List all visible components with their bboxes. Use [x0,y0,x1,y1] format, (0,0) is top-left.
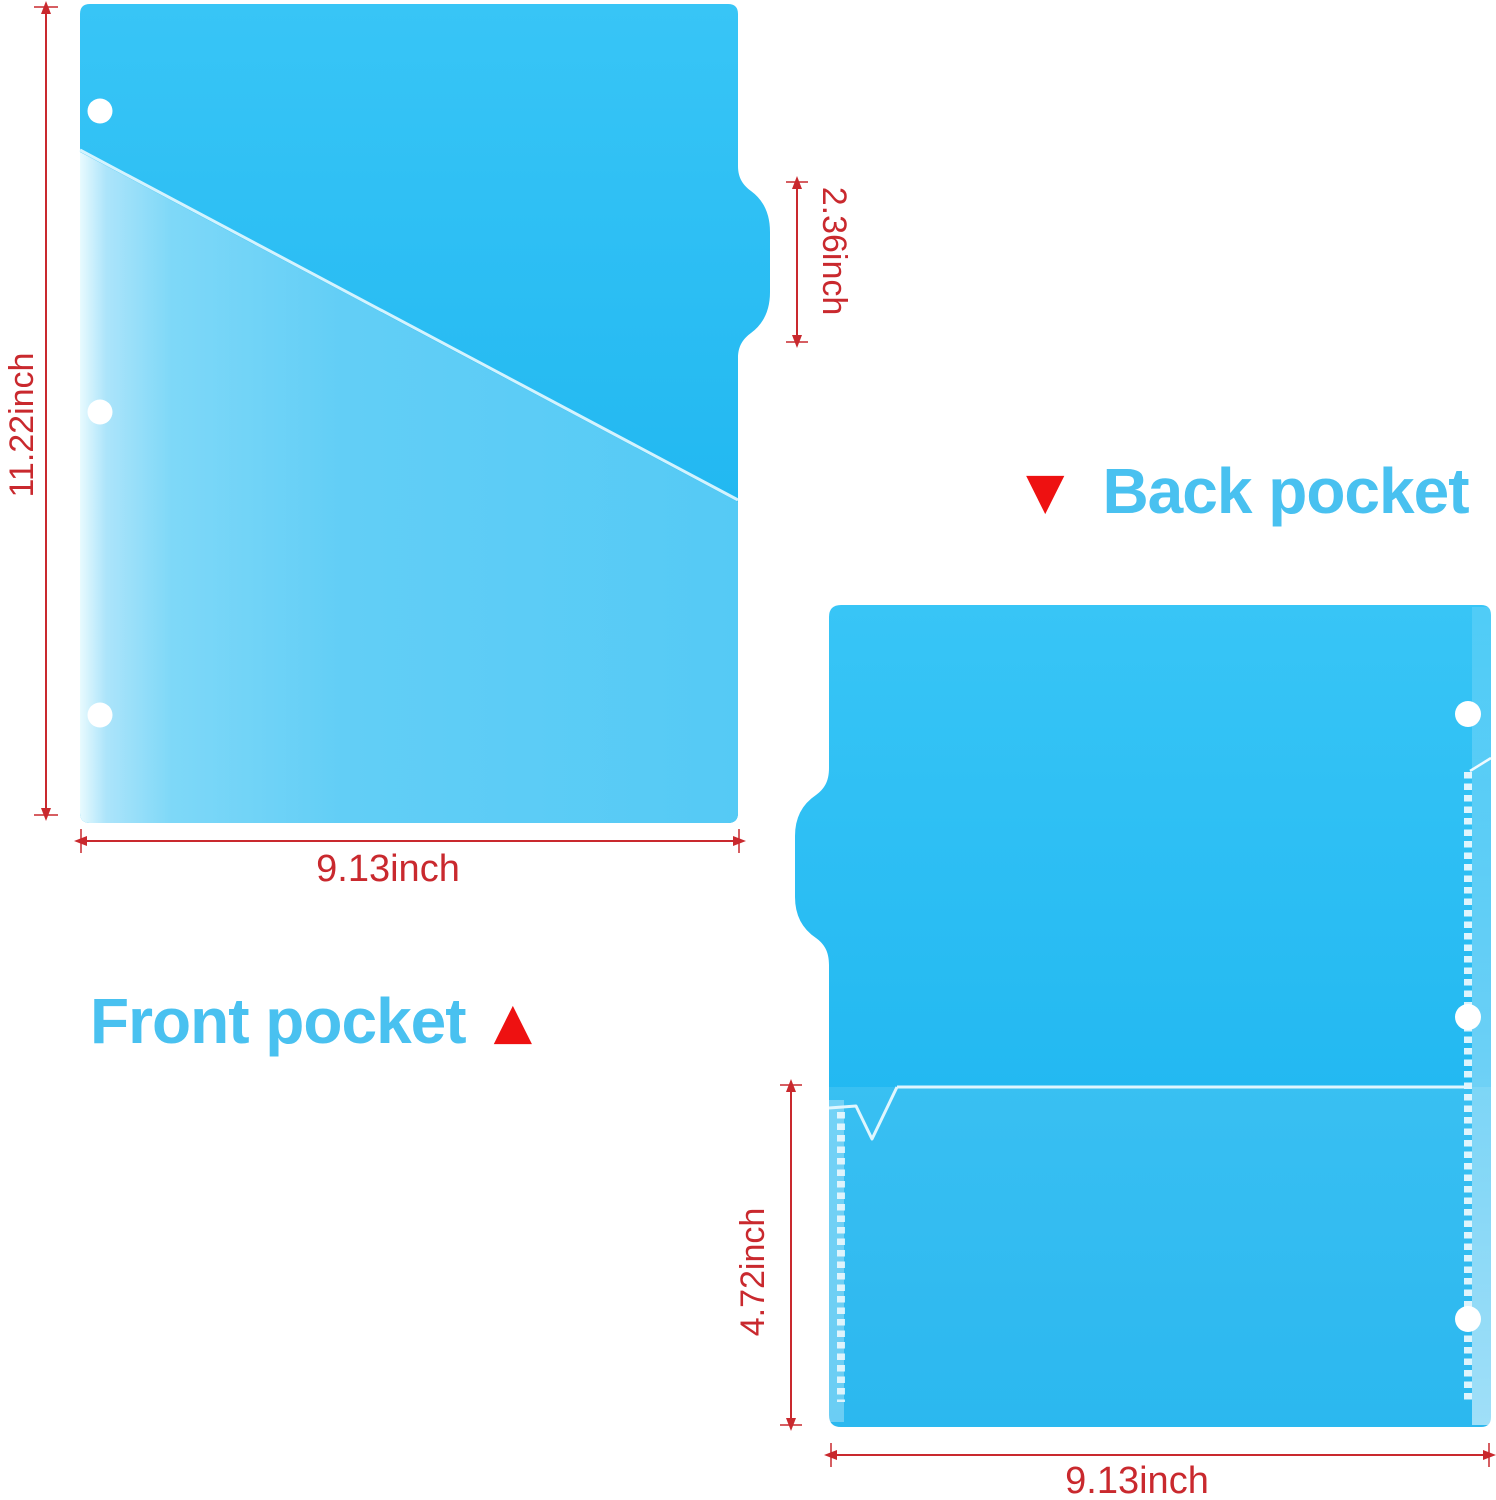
dim-line-tab-height [786,176,808,348]
front-width-label: 9.13inch [278,847,498,891]
back-width-label: 9.13inch [1027,1459,1247,1500]
binder-hole [88,400,113,425]
pocket-height-label: 4.72inch [732,1162,774,1382]
binder-hole [1455,701,1481,727]
back-pocket-caption: ▼ Back pocket [1026,451,1469,531]
binder-hole [1455,1306,1481,1332]
binder-hole [88,99,113,124]
binder-hole [88,703,113,728]
tab-height-label: 2.36inch [813,141,855,361]
triangle-down-icon: ▼ [1026,466,1064,516]
product-dimension-diagram: 11.22inch 9.13inch 2.36inch 4.72inch 9.1… [0,0,1496,1500]
front-pocket-caption-text: Front pocket [90,984,466,1058]
back-pocket-panel [829,1087,1491,1427]
back-pocket-caption-text: Back pocket [1102,454,1468,528]
dim-line-pocket-height [780,1079,802,1431]
triangle-up-icon: ▲ [494,996,532,1046]
front-pocket-caption: Front pocket ▲ [90,981,532,1061]
front-divider [80,4,770,823]
back-divider [795,605,1491,1427]
front-height-label: 11.22inch [1,315,43,535]
binder-hole [1455,1004,1481,1030]
